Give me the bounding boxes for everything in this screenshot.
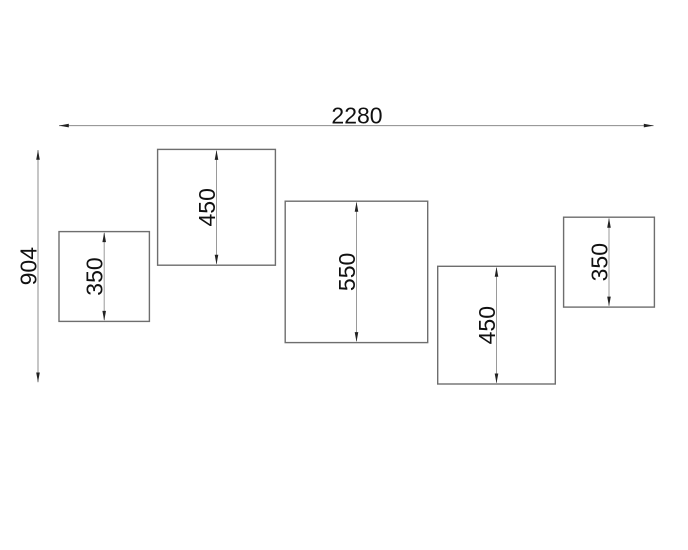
svg-text:550: 550 [334, 253, 360, 291]
svg-text:350: 350 [82, 257, 108, 295]
svg-text:450: 450 [474, 306, 500, 344]
svg-text:2280: 2280 [331, 102, 382, 128]
svg-text:450: 450 [194, 188, 220, 226]
svg-text:904: 904 [16, 247, 42, 286]
svg-text:350: 350 [586, 243, 612, 281]
